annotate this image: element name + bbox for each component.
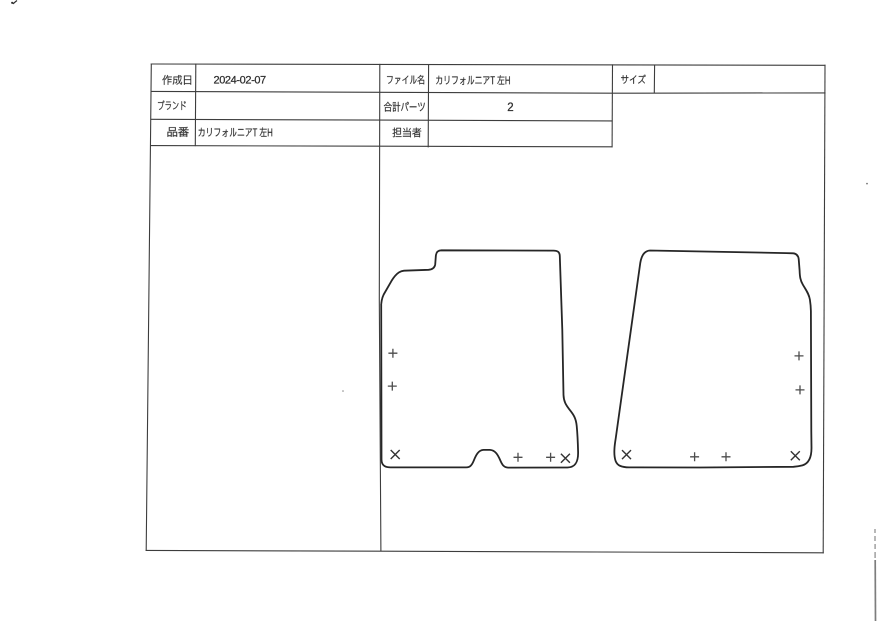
svg-text:2: 2	[507, 102, 513, 114]
svg-text:2024-02-07: 2024-02-07	[214, 74, 267, 86]
